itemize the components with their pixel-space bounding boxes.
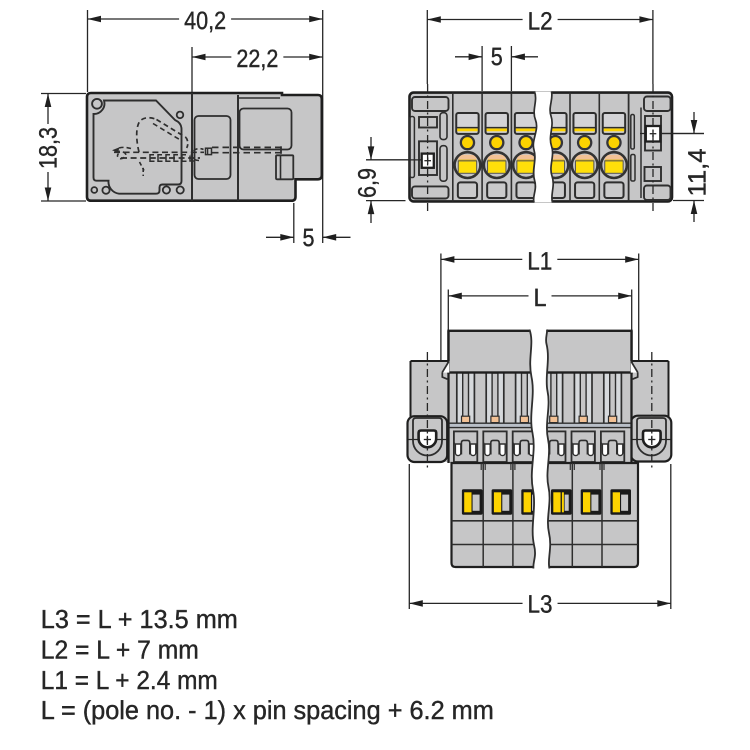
svg-text:18,3: 18,3 — [35, 127, 63, 169]
svg-text:L2 = L + 7 mm: L2 = L + 7 mm — [41, 634, 199, 664]
svg-text:L3 = L + 13.5 mm: L3 = L + 13.5 mm — [41, 604, 238, 634]
svg-text:L = (pole no. - 1) x pin spaci: L = (pole no. - 1) x pin spacing + 6.2 m… — [41, 695, 494, 725]
svg-text:11,4: 11,4 — [684, 148, 712, 196]
svg-text:L: L — [534, 284, 547, 312]
svg-text:5: 5 — [491, 43, 503, 71]
svg-text:40,2: 40,2 — [184, 7, 226, 35]
svg-text:6,9: 6,9 — [354, 168, 382, 198]
svg-text:L2: L2 — [528, 8, 553, 36]
svg-text:L3: L3 — [528, 591, 553, 619]
svg-text:22,2: 22,2 — [236, 45, 278, 73]
svg-text:L1: L1 — [527, 247, 552, 275]
svg-text:5: 5 — [303, 224, 315, 252]
svg-text:L1 = L + 2.4 mm: L1 = L + 2.4 mm — [41, 665, 218, 695]
